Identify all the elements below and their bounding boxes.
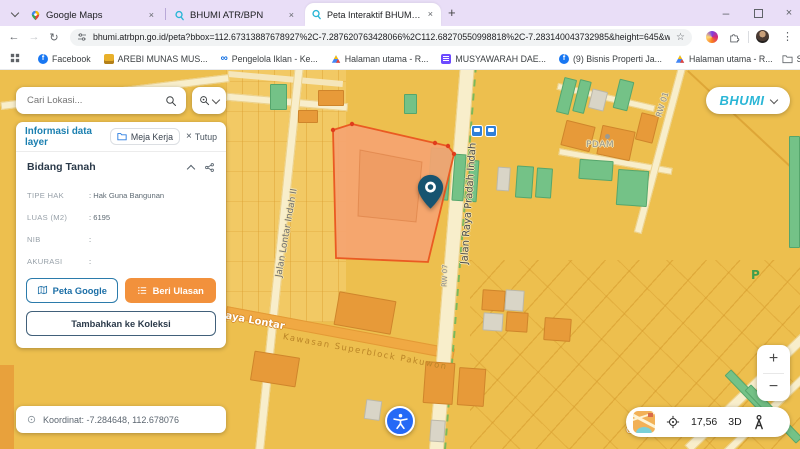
bookmark-facebook[interactable]: f Facebook	[38, 54, 91, 64]
field-row: AKURASI :	[27, 250, 215, 272]
poi-label: PDAM	[586, 140, 614, 150]
tab-label: BHUMI ATR/BPN	[190, 10, 282, 21]
bookmark-label: Pengelola Iklan - Ke...	[232, 54, 318, 64]
bhumi-favicon	[174, 10, 185, 21]
forward-button[interactable]: →	[24, 31, 44, 43]
google-triangle-icon	[331, 54, 341, 64]
bookmarks-bar: f Facebook AREBI MUNAS MUS... ∞ Pengelol…	[0, 48, 800, 70]
window-restore-button[interactable]	[746, 0, 770, 26]
tab-divider	[165, 8, 166, 20]
bookmark-halaman-utama-1[interactable]: Halaman utama - R...	[331, 54, 429, 64]
beri-ulasan-button[interactable]: Beri Ulasan	[125, 278, 217, 303]
zoom-in-button[interactable]: +	[757, 345, 790, 373]
beri-ulasan-label: Beri Ulasan	[153, 286, 204, 296]
coordinate-text: Koordinat: -7.284648, 112.678076	[43, 415, 179, 425]
extensions-icon[interactable]	[728, 30, 741, 48]
apps-grid-icon[interactable]	[10, 50, 20, 68]
accessibility-button[interactable]	[385, 406, 415, 436]
bookmark-bisnis-properti[interactable]: f (9) Bisnis Properti Ja...	[559, 54, 662, 64]
purple-doc-icon	[441, 54, 451, 64]
tab-close-icon[interactable]: ×	[426, 9, 435, 20]
meja-kerja-label: Meja Kerja	[131, 132, 173, 142]
meta-infinity-icon: ∞	[221, 54, 228, 64]
browser-window: Google Maps × BHUMI ATR/BPN × Peta Inter…	[0, 0, 800, 449]
all-bookmarks-label: Semua Bookmark	[797, 54, 800, 64]
bookmark-label: Halaman utama - R...	[689, 54, 773, 64]
search-input[interactable]	[25, 94, 165, 107]
tab-strip: Google Maps × BHUMI ATR/BPN × Peta Inter…	[0, 0, 800, 26]
zoom-level-value: 17,56	[691, 416, 717, 428]
coordinate-crosshair-icon	[26, 414, 37, 425]
window-close-button[interactable]: ×	[778, 0, 800, 26]
bookmark-star-icon[interactable]: ☆	[676, 32, 685, 43]
section-header: Bidang Tanah	[16, 152, 226, 182]
bookmark-label: Halaman utama - R...	[345, 54, 429, 64]
poi-dot	[605, 134, 610, 139]
advanced-search-button[interactable]	[192, 87, 226, 114]
field-label: LUAS (M2)	[27, 213, 89, 222]
profile-avatar[interactable]	[756, 30, 769, 43]
bookmark-arebi[interactable]: AREBI MUNAS MUS...	[104, 54, 208, 64]
close-panel-button[interactable]: × Tutup	[186, 131, 217, 142]
close-icon: ×	[186, 131, 192, 142]
action-buttons-row: Peta Google Beri Ulasan	[16, 272, 226, 303]
all-bookmarks-button[interactable]: Semua Bookmark	[782, 54, 800, 64]
tambah-koleksi-button[interactable]: Tambahkan ke Koleksi	[26, 311, 216, 336]
bookmark-musyawarah[interactable]: MUSYAWARAH DAE...	[441, 54, 546, 64]
folder-icon	[782, 54, 793, 64]
field-value: : 6195	[89, 213, 110, 222]
tutup-label: Tutup	[195, 132, 217, 142]
bookmark-label: MUSYAWARAH DAE...	[455, 54, 546, 64]
search-plus-icon	[199, 95, 210, 106]
zoom-control: + −	[757, 345, 790, 401]
extension-instagram-icon[interactable]	[706, 31, 718, 43]
arebi-icon	[104, 54, 114, 64]
toolbar-divider	[748, 31, 749, 43]
tab-label: Peta Interaktif BHUMI ATR/BPN	[327, 10, 421, 20]
restore-icon	[754, 9, 763, 18]
field-row: NIB :	[27, 228, 215, 250]
site-info-icon[interactable]	[77, 32, 87, 42]
basemap-thumbnail[interactable]	[633, 411, 655, 433]
search-box	[16, 87, 186, 114]
address-bar[interactable]: bhumi.atrbpn.go.id/peta?bbox=112.6731388…	[70, 29, 692, 46]
share-icon[interactable]	[204, 162, 215, 173]
new-tab-button[interactable]: +	[448, 5, 456, 20]
bookmark-halaman-utama-2[interactable]: Halaman utama - R...	[675, 54, 773, 64]
bus-stop-icon[interactable]	[485, 125, 497, 137]
bookmark-label: AREBI MUNAS MUS...	[118, 54, 208, 64]
tab-search-chevron-icon[interactable]	[7, 6, 22, 21]
tab-peta-interaktif-active[interactable]: Peta Interaktif BHUMI ATR/BPN ×	[305, 3, 441, 26]
tab-google-maps[interactable]: Google Maps ×	[24, 4, 162, 26]
bookmark-label: (9) Bisnis Properti Ja...	[573, 54, 662, 64]
tab-bhumi[interactable]: BHUMI ATR/BPN ×	[168, 4, 302, 26]
tambah-koleksi-label: Tambahkan ke Koleksi	[71, 319, 171, 329]
compass-icon[interactable]	[753, 415, 765, 430]
parking-label: P	[751, 268, 760, 282]
field-row: LUAS (M2) : 6195	[27, 206, 215, 228]
section-title: Bidang Tanah	[27, 161, 182, 173]
chevron-down-icon	[212, 95, 220, 103]
info-panel: Informasi data layer Meja Kerja × Tutup …	[16, 122, 226, 348]
coordinate-bar: Koordinat: -7.284648, 112.678076	[16, 406, 226, 433]
field-value: : Hak Guna Bangunan	[89, 191, 164, 200]
field-value: :	[89, 257, 91, 266]
collection-row: Tambahkan ke Koleksi	[16, 303, 226, 336]
panel-header: Informasi data layer Meja Kerja × Tutup	[16, 122, 226, 152]
reload-button[interactable]: ↻	[44, 31, 64, 44]
meja-kerja-button[interactable]: Meja Kerja	[110, 128, 180, 145]
search-icon[interactable]	[165, 95, 177, 107]
bhumi-favicon	[311, 9, 322, 20]
accessibility-person-icon	[392, 413, 409, 430]
bookmark-label: Facebook	[52, 54, 91, 64]
field-value: :	[89, 235, 91, 244]
zoom-out-button[interactable]: −	[757, 374, 790, 402]
back-button[interactable]: ←	[4, 31, 24, 43]
peta-google-button[interactable]: Peta Google	[26, 278, 118, 303]
url-text: bhumi.atrbpn.go.id/peta?bbox=112.6731388…	[93, 32, 670, 42]
parcel-footprint	[358, 150, 422, 222]
map-toolbar: 17,56 3D	[626, 407, 790, 437]
bhumi-logo: BHUMI	[719, 93, 764, 108]
google-triangle-icon	[675, 54, 685, 64]
locate-icon[interactable]	[666, 415, 680, 429]
location-pin[interactable]	[417, 174, 444, 210]
panel-title: Informasi data layer	[25, 126, 106, 148]
chevron-down-icon	[769, 95, 777, 103]
map-icon	[37, 285, 48, 296]
mode-3d-button[interactable]: 3D	[728, 416, 741, 428]
google-maps-icon	[30, 10, 41, 21]
bhumi-menu-button[interactable]: BHUMI	[706, 87, 790, 114]
collapse-chevron-icon[interactable]	[187, 164, 195, 172]
facebook-icon: f	[38, 54, 48, 64]
facebook-icon: f	[559, 54, 569, 64]
tab-close-icon[interactable]: ×	[287, 10, 296, 21]
field-row: TIPE HAK : Hak Guna Bangunan	[27, 184, 215, 206]
tab-close-icon[interactable]: ×	[147, 10, 156, 21]
street-label: RW 07	[441, 261, 450, 287]
fields-list: TIPE HAK : Hak Guna Bangunan LUAS (M2) :…	[16, 182, 226, 272]
browser-menu-kebab-icon[interactable]: ⋮	[782, 30, 793, 43]
window-minimize-button[interactable]: –	[714, 0, 738, 26]
field-label: AKURASI	[27, 257, 89, 266]
field-label: NIB	[27, 235, 89, 244]
tab-label: Google Maps	[46, 10, 142, 21]
bookmark-pengelola-iklan[interactable]: ∞ Pengelola Iklan - Ke...	[221, 54, 318, 64]
peta-google-label: Peta Google	[53, 286, 107, 296]
review-list-icon	[137, 285, 148, 296]
field-label: TIPE HAK	[27, 191, 89, 200]
workspace-folder-icon	[117, 132, 127, 141]
